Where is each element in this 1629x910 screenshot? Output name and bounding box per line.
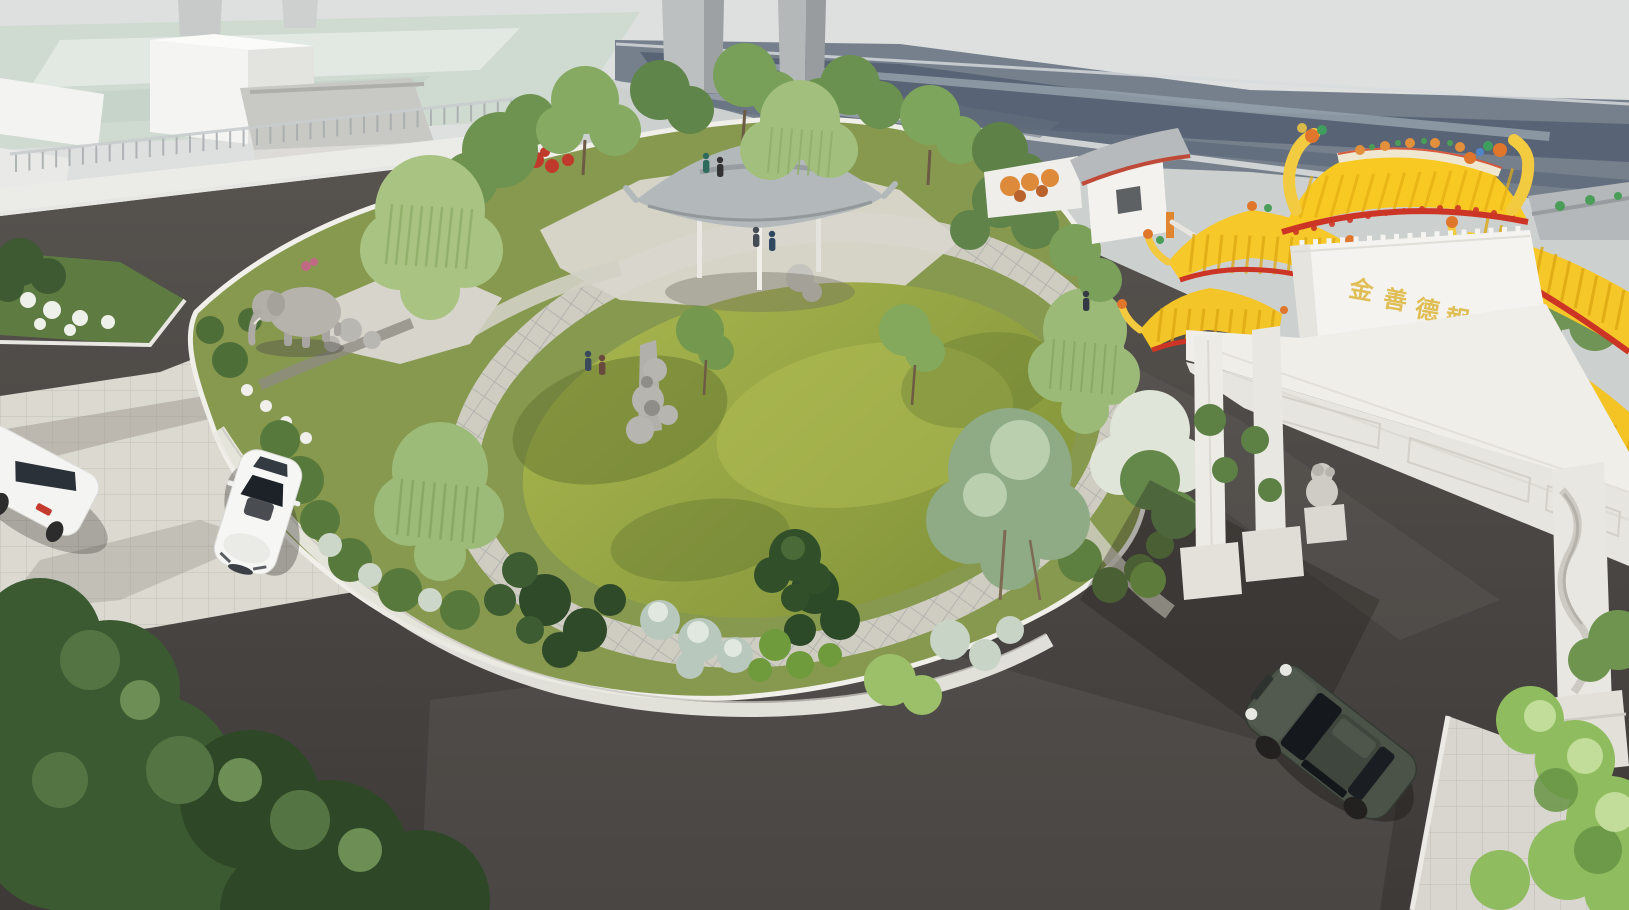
roof-ornament	[1446, 216, 1458, 228]
pavilion-column	[697, 212, 702, 278]
pedestrian	[717, 157, 724, 177]
elephant-ear	[267, 292, 285, 316]
finial-ornaments	[1483, 141, 1493, 151]
pedestrian	[585, 351, 592, 371]
viaduct-pier-far	[178, 0, 222, 36]
pedestrian	[1083, 291, 1090, 311]
pillar-pedestal	[1242, 526, 1304, 582]
tree-trunk	[928, 150, 930, 185]
pedestrian	[599, 355, 606, 375]
pedestrian	[753, 227, 760, 247]
viaduct-pier	[778, 0, 806, 82]
tree-trunk	[583, 140, 585, 175]
pillar-pedestal	[1180, 542, 1242, 600]
finial-ornaments	[1297, 123, 1307, 133]
sculpted-pine-light	[781, 536, 805, 560]
park-rendering: 金善德報	[0, 0, 1629, 910]
pedestrian	[703, 153, 710, 173]
finial-ornaments	[1305, 129, 1319, 143]
gate-inscription-char: 善	[1381, 284, 1409, 316]
rendering-canvas: 金善德報	[0, 0, 1629, 910]
viaduct-pier-far	[282, 0, 318, 28]
elephant-shadow	[256, 339, 344, 357]
lion-pedestal	[1304, 504, 1347, 544]
pavilion-column	[816, 210, 821, 272]
pedestrian	[769, 231, 776, 251]
finial-ornaments	[1476, 148, 1484, 156]
finial-ornaments	[1317, 125, 1327, 135]
viaduct-pier-side	[805, 0, 826, 82]
booth-window	[1116, 186, 1142, 214]
scene-layers: 金善德報	[0, 0, 1629, 910]
